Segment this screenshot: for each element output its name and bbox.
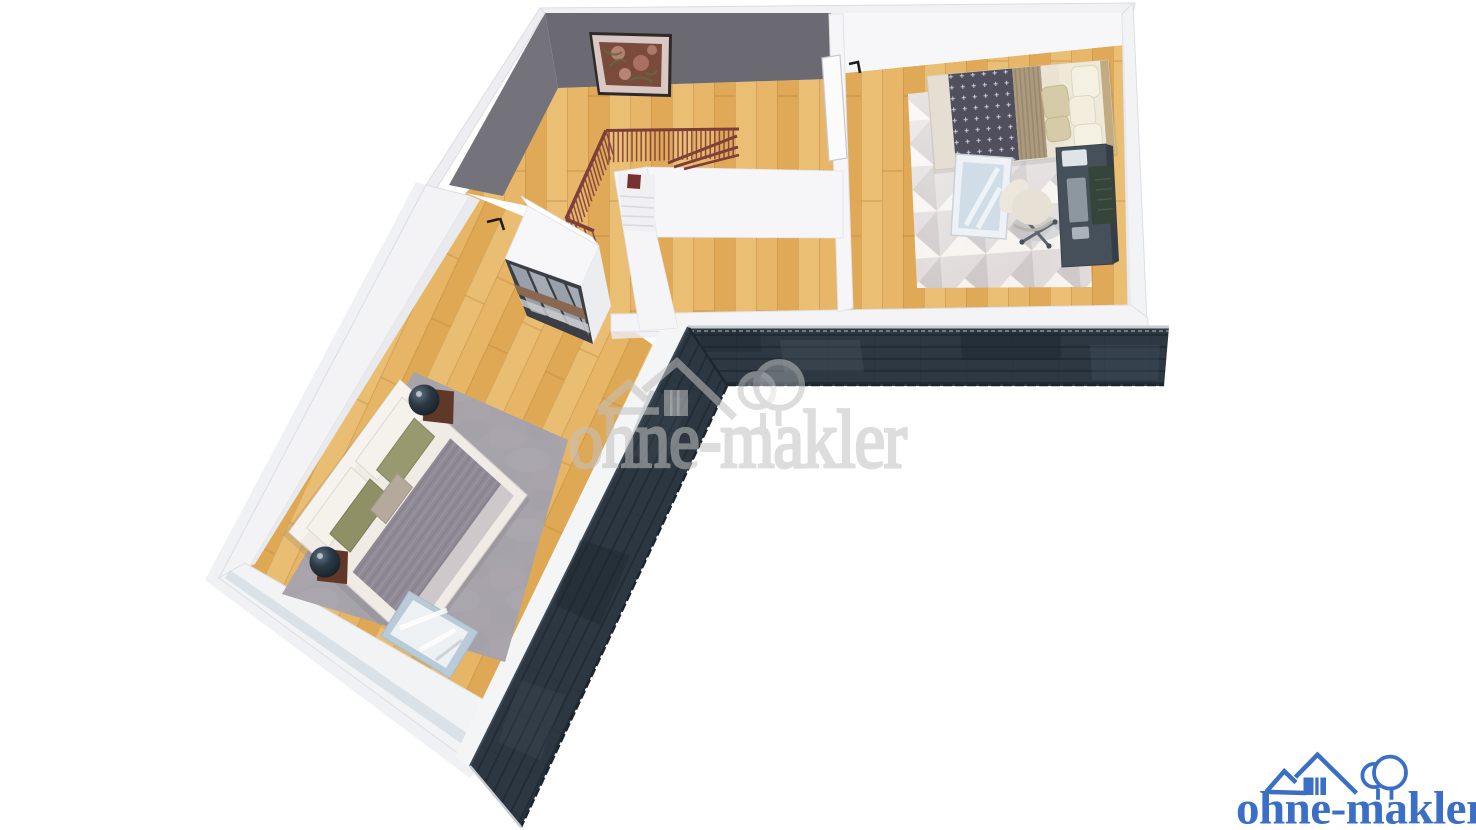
svg-text:ohne-makler: ohne-makler [1236,782,1476,830]
svg-text:ohne-makler: ohne-makler [568,394,906,486]
